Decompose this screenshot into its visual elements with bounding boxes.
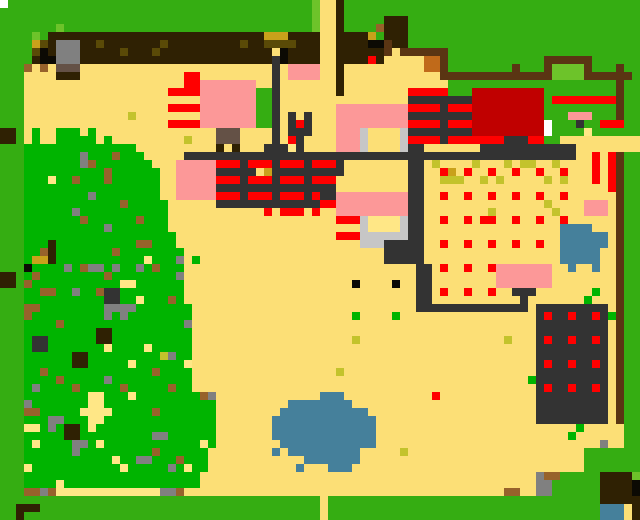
game-world-map	[0, 0, 640, 520]
world-map-canvas[interactable]	[0, 0, 640, 520]
